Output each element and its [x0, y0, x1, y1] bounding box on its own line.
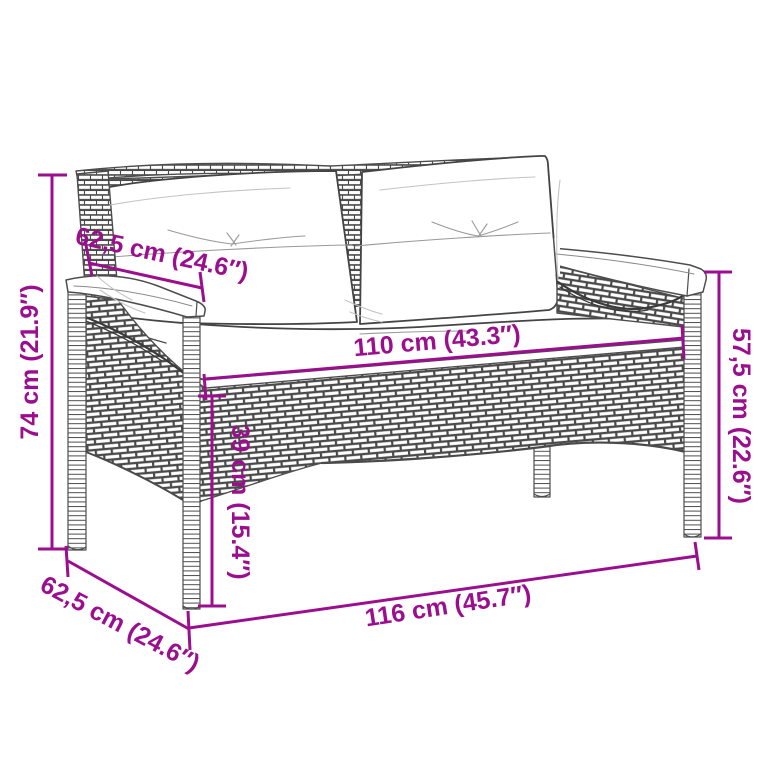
svg-text:74 cm (21.9″): 74 cm (21.9″) — [16, 284, 44, 439]
svg-text:39 cm (15.4″): 39 cm (15.4″) — [226, 424, 254, 579]
svg-text:57,5 cm (22.6″): 57,5 cm (22.6″) — [727, 328, 755, 504]
